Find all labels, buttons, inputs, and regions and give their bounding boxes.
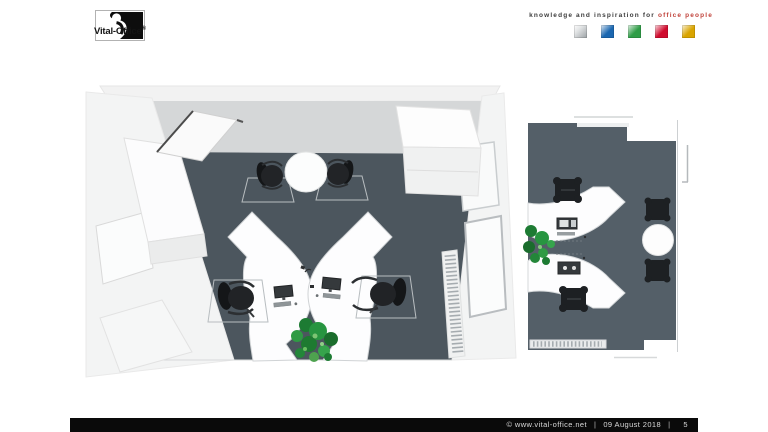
plan-side-chair bbox=[645, 198, 671, 222]
plan-meeting-corner bbox=[643, 198, 674, 283]
footer-date: 09 August 2018 bbox=[603, 420, 661, 429]
monitor bbox=[274, 285, 293, 298]
back-wall bbox=[100, 86, 500, 102]
plan-chair-top bbox=[553, 177, 582, 203]
round-meeting-table bbox=[285, 152, 327, 192]
office-renders bbox=[0, 0, 768, 432]
plan-notch-top bbox=[627, 123, 676, 141]
slide-page: Vital-Office® knowledge and inspiration … bbox=[0, 0, 768, 432]
plan-side-chair bbox=[645, 259, 671, 283]
plan-radiator bbox=[530, 340, 606, 348]
left-room-top-view bbox=[86, 86, 516, 377]
door-opening bbox=[577, 123, 629, 127]
footer-separator: | bbox=[668, 420, 670, 429]
footer-page-number: 5 bbox=[683, 420, 688, 429]
plan-notch-bottom bbox=[644, 340, 676, 350]
plan-chair-bottom bbox=[559, 286, 588, 312]
footer-bar: © www.vital-office.net|09 August 2018|5 bbox=[70, 418, 698, 432]
whiteboard bbox=[465, 216, 506, 317]
desk-accessory bbox=[310, 285, 314, 288]
footer-copyright: © www.vital-office.net bbox=[507, 420, 587, 429]
plan-round-table bbox=[643, 225, 674, 256]
right-room-floor-plan bbox=[523, 117, 688, 358]
footer-separator: | bbox=[594, 420, 596, 429]
monitor bbox=[322, 277, 341, 290]
tall-cabinet bbox=[396, 106, 481, 196]
